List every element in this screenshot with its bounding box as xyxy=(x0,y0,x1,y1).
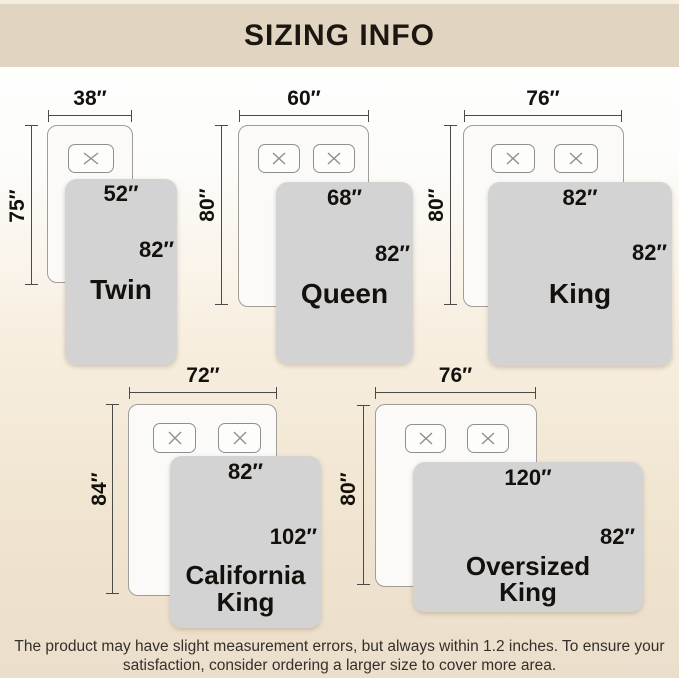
pillow xyxy=(405,424,446,453)
pillow-x-icon xyxy=(416,430,436,447)
footer-note-line2: satisfaction, consider ordering a larger… xyxy=(0,656,679,675)
blanket: 120″ 82″ Oversized King xyxy=(413,462,643,612)
size-diagram-oversized-king: 76″ 80″ 120″ 82″ Oversized King xyxy=(0,0,679,678)
height-measure-line xyxy=(363,405,364,585)
blanket-width-value: 120″ xyxy=(413,465,643,491)
width-measure-line xyxy=(375,392,536,393)
pillow xyxy=(467,424,509,453)
footer-note: The product may have slight measurement … xyxy=(0,637,679,675)
bed-width-value: 76″ xyxy=(375,364,536,388)
blanket-length-value: 82″ xyxy=(600,524,635,550)
footer-note-line1: The product may have slight measurement … xyxy=(0,637,679,656)
bed-height-value: 80″ xyxy=(337,449,361,529)
sizing-info-infographic: SIZING INFO 38″ 75″ 52″ 82″ Twin 60″ 80″ xyxy=(0,0,679,678)
size-name-label: Oversized King xyxy=(413,553,643,605)
pillow-x-icon xyxy=(478,430,498,447)
